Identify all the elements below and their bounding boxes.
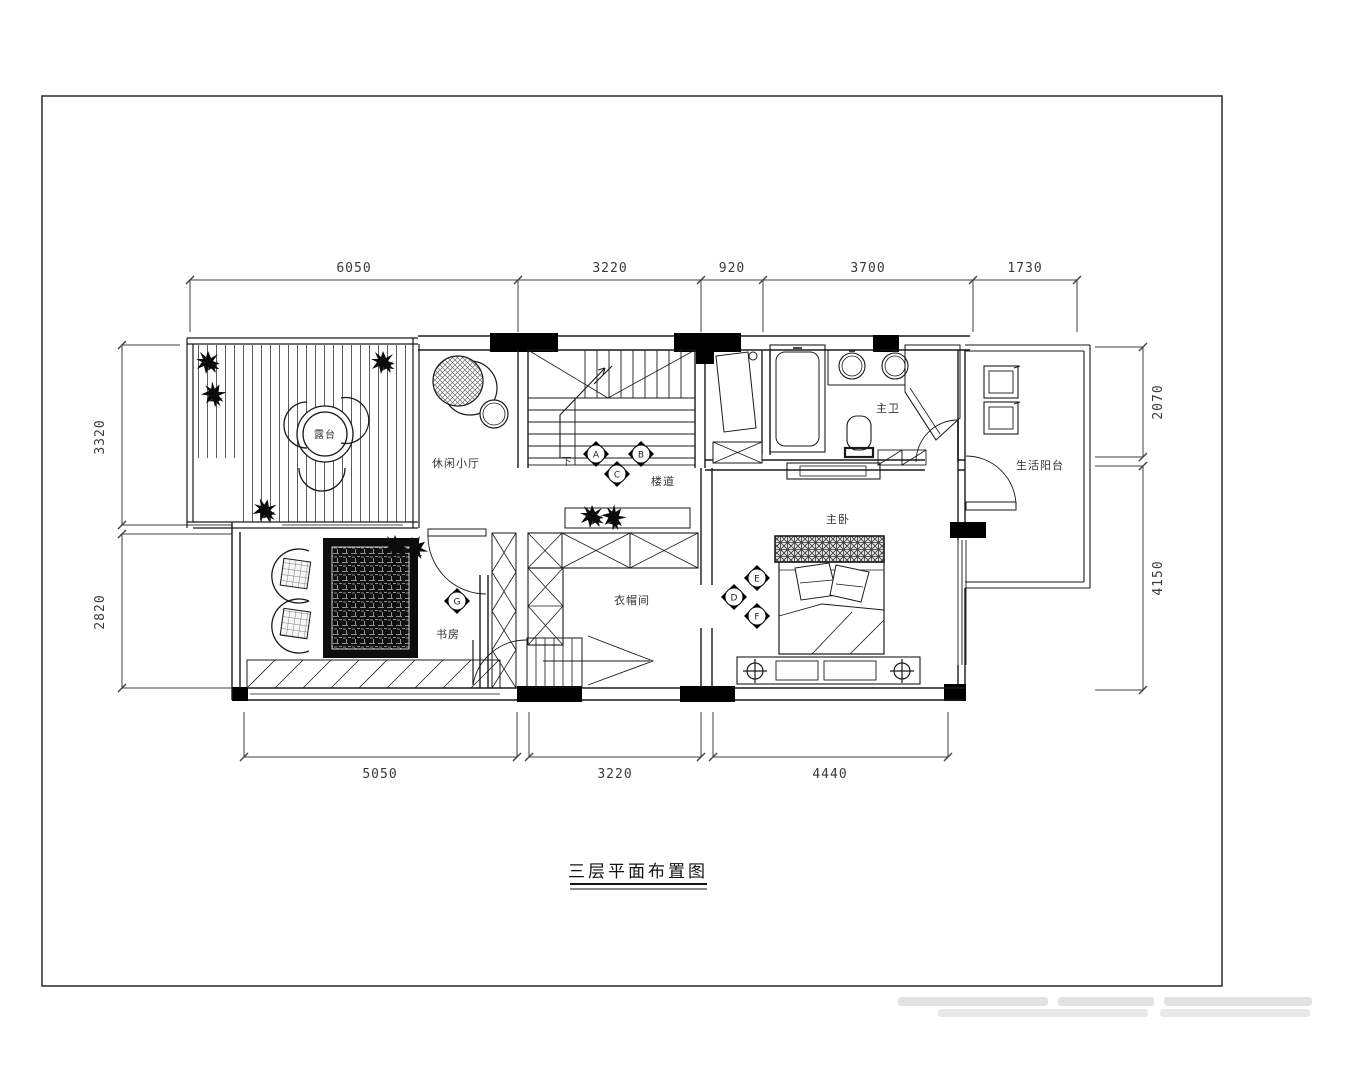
dim-left-1: 3320 xyxy=(93,419,108,454)
room-label-study: 书房 xyxy=(436,628,460,641)
elevation-marker-b: B xyxy=(628,441,654,467)
room-label-stairwell: 楼道 xyxy=(651,474,675,488)
room-label-cloakroom: 衣帽间 xyxy=(614,593,650,607)
drawing-sheet: 6050 3220 920 3700 1730 5050 3220 4440 3… xyxy=(0,0,1350,1080)
dim-top-3: 920 xyxy=(719,261,745,276)
floor-plan-canvas: 6050 3220 920 3700 1730 5050 3220 4440 3… xyxy=(0,0,1350,1080)
dim-top-1: 6050 xyxy=(336,261,371,276)
console-shelf xyxy=(565,501,690,534)
svg-text:D: D xyxy=(731,594,738,604)
svg-text:E: E xyxy=(754,575,760,585)
master-bath xyxy=(770,345,960,465)
room-label-utility-balcony: 生活阳台 xyxy=(1016,458,1064,472)
elevation-marker-a: A xyxy=(583,441,609,467)
sheet-border xyxy=(42,96,1222,986)
svg-text:A: A xyxy=(593,451,600,461)
svg-text:B: B xyxy=(638,451,644,461)
elevation-marker-d: D xyxy=(721,584,747,610)
stair-down-label: 下 xyxy=(562,457,573,468)
svg-text:C: C xyxy=(614,471,620,481)
dimension-chain-right xyxy=(1095,343,1147,694)
terrace: 露台 xyxy=(187,338,419,528)
room-label-lounge: 休闲小厅 xyxy=(432,456,480,470)
svg-text:G: G xyxy=(454,598,461,608)
dim-bottom-1: 5050 xyxy=(362,767,397,782)
elevation-marker-g: G xyxy=(444,588,470,614)
elevation-marker-e: E xyxy=(744,565,770,591)
leisure-lounge: 休闲小厅 xyxy=(432,356,508,470)
drawing-title: 三层平面布置图 xyxy=(568,862,708,889)
drawing-title-text: 三层平面布置图 xyxy=(568,862,708,882)
dim-bottom-2: 3220 xyxy=(597,767,632,782)
room-label-terrace: 露台 xyxy=(314,428,336,441)
dim-top-2: 3220 xyxy=(592,261,627,276)
watermark xyxy=(898,997,1312,1017)
room-label-master-bath: 主卫 xyxy=(876,402,900,415)
dim-bottom-3: 4440 xyxy=(812,767,847,782)
staircase xyxy=(528,350,695,465)
elevation-marker-f: F xyxy=(744,603,770,629)
dim-right-2: 4150 xyxy=(1151,560,1166,595)
vestibule xyxy=(713,352,762,463)
dimension-chain-bottom xyxy=(240,712,952,761)
dim-top-5: 1730 xyxy=(1007,261,1042,276)
svg-text:F: F xyxy=(754,613,759,623)
dimension-chain-top xyxy=(186,276,1081,332)
dim-left-2: 2820 xyxy=(93,594,108,629)
dim-right-1: 2070 xyxy=(1151,384,1166,419)
dim-top-4: 3700 xyxy=(850,261,885,276)
room-label-master-bedroom: 主卧 xyxy=(826,513,850,526)
cloakroom xyxy=(473,533,698,688)
